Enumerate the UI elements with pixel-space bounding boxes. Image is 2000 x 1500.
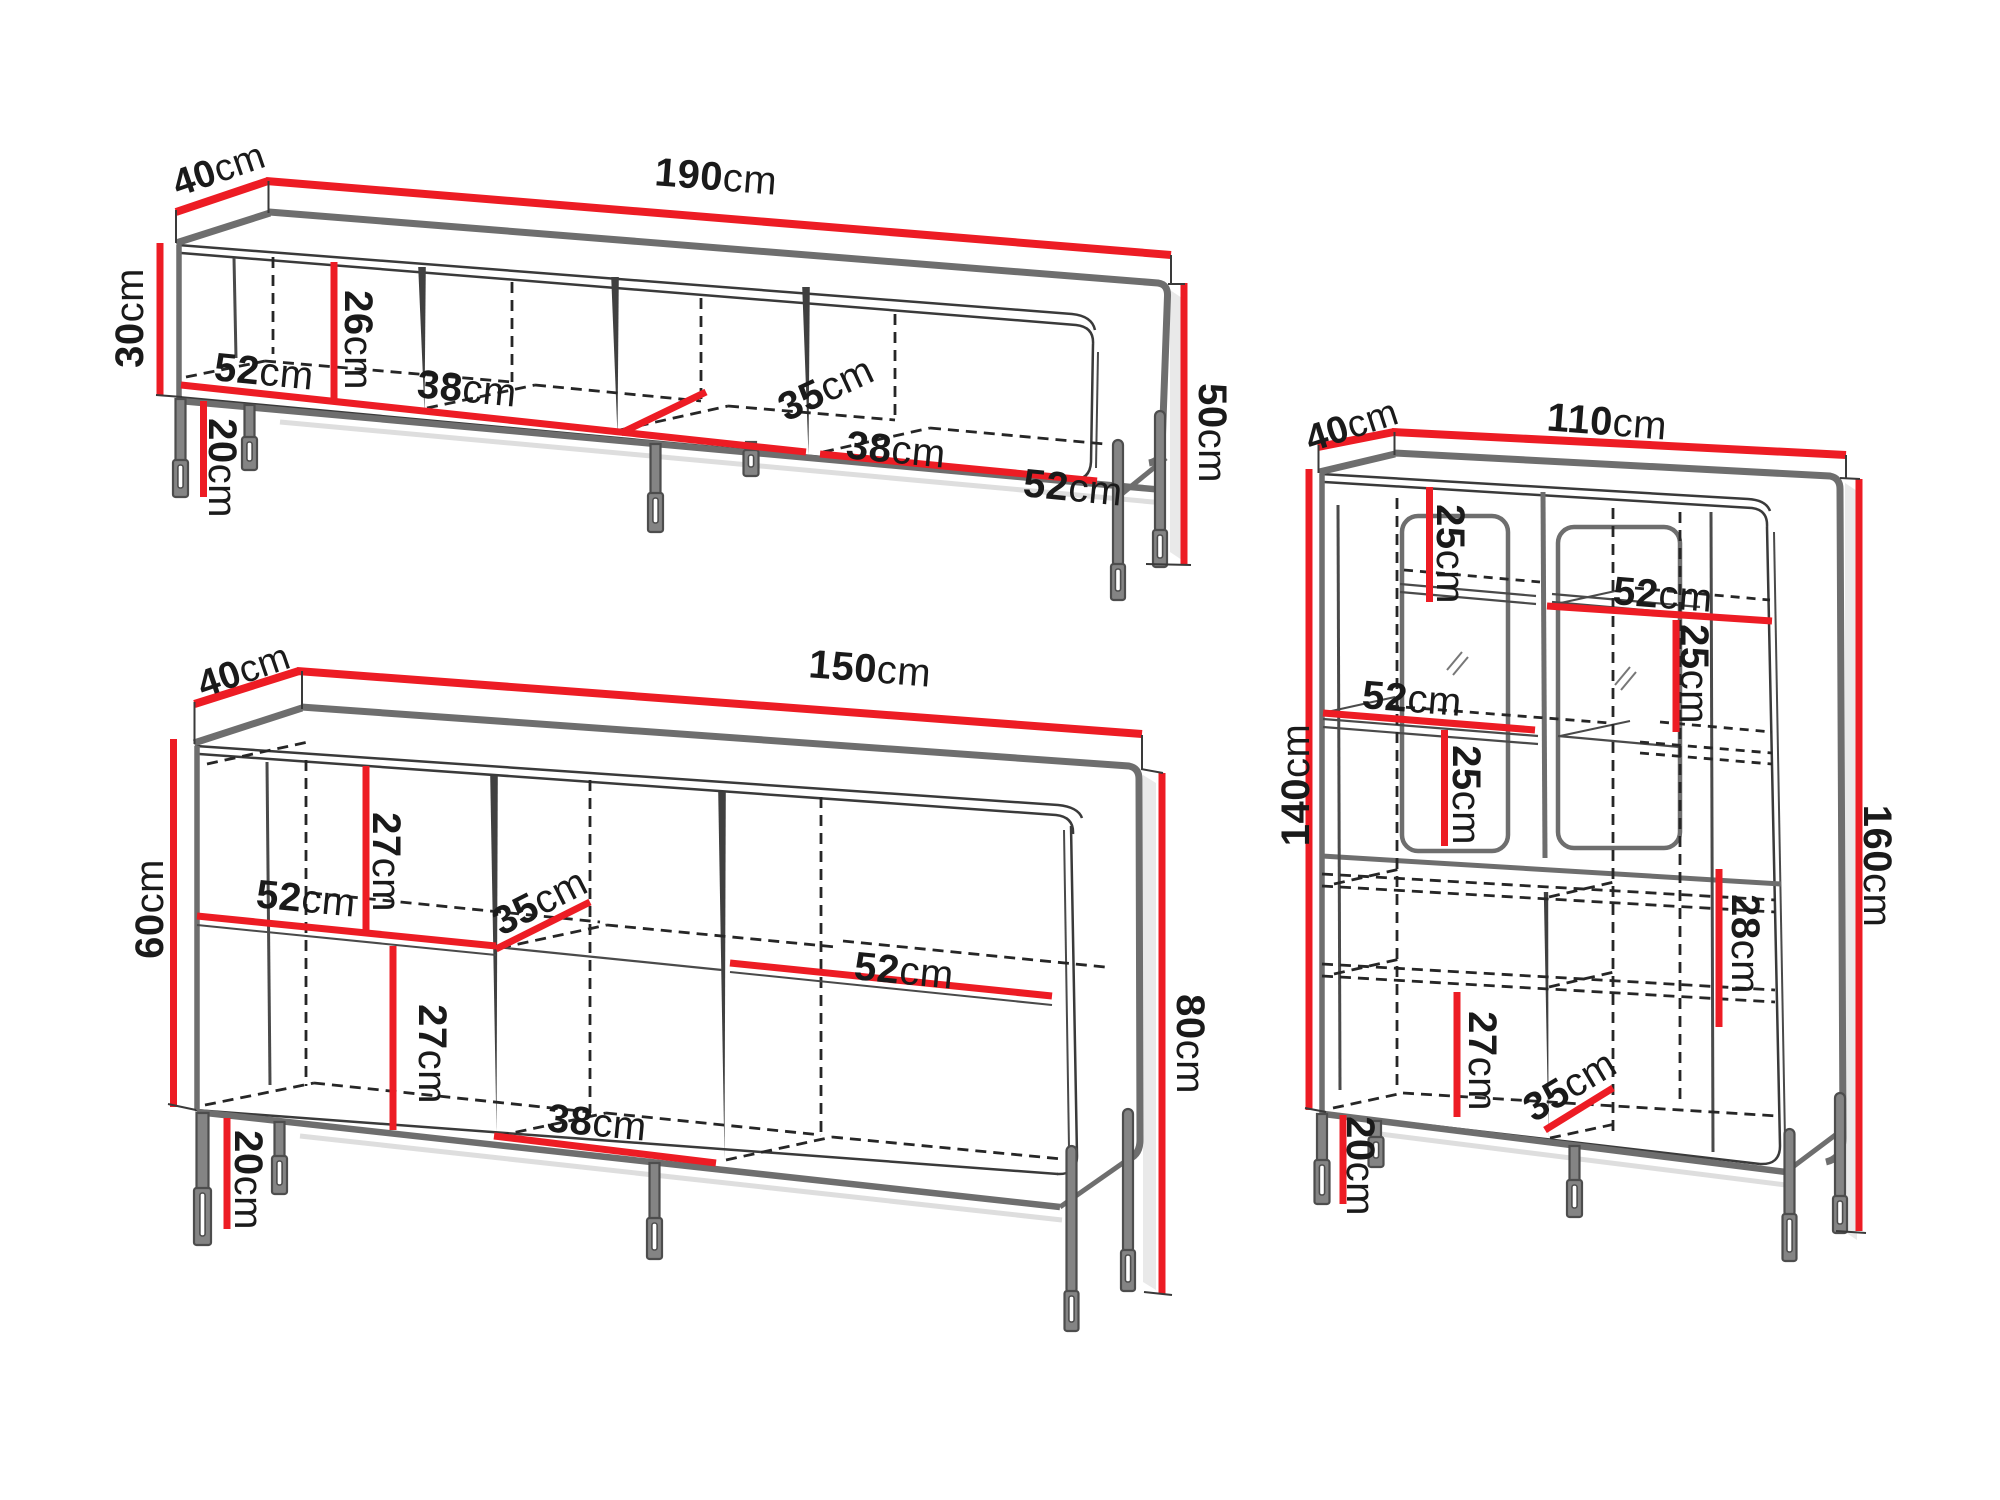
svg-text:27cm: 27cm [410,1004,454,1104]
svg-text:80cm: 80cm [1168,994,1212,1094]
svg-text:26cm: 26cm [336,290,380,390]
svg-text:20cm: 20cm [1338,1116,1382,1216]
svg-text:110cm: 110cm [1545,395,1668,448]
svg-text:60cm: 60cm [128,859,172,959]
svg-text:30cm: 30cm [108,268,152,368]
svg-text:140cm: 140cm [1274,724,1318,847]
svg-text:52cm: 52cm [1612,569,1715,621]
svg-text:25cm: 25cm [1444,745,1488,845]
svg-text:25cm: 25cm [1672,624,1716,724]
svg-text:160cm: 160cm [1855,805,1899,928]
svg-text:50cm: 50cm [1190,383,1234,483]
svg-text:20cm: 20cm [200,418,244,518]
svg-text:52cm: 52cm [1361,673,1464,725]
svg-text:25cm: 25cm [1428,504,1472,604]
svg-text:27cm: 27cm [364,812,408,912]
svg-text:28cm: 28cm [1723,894,1767,994]
svg-text:20cm: 20cm [226,1130,270,1230]
svg-text:27cm: 27cm [1460,1011,1504,1111]
